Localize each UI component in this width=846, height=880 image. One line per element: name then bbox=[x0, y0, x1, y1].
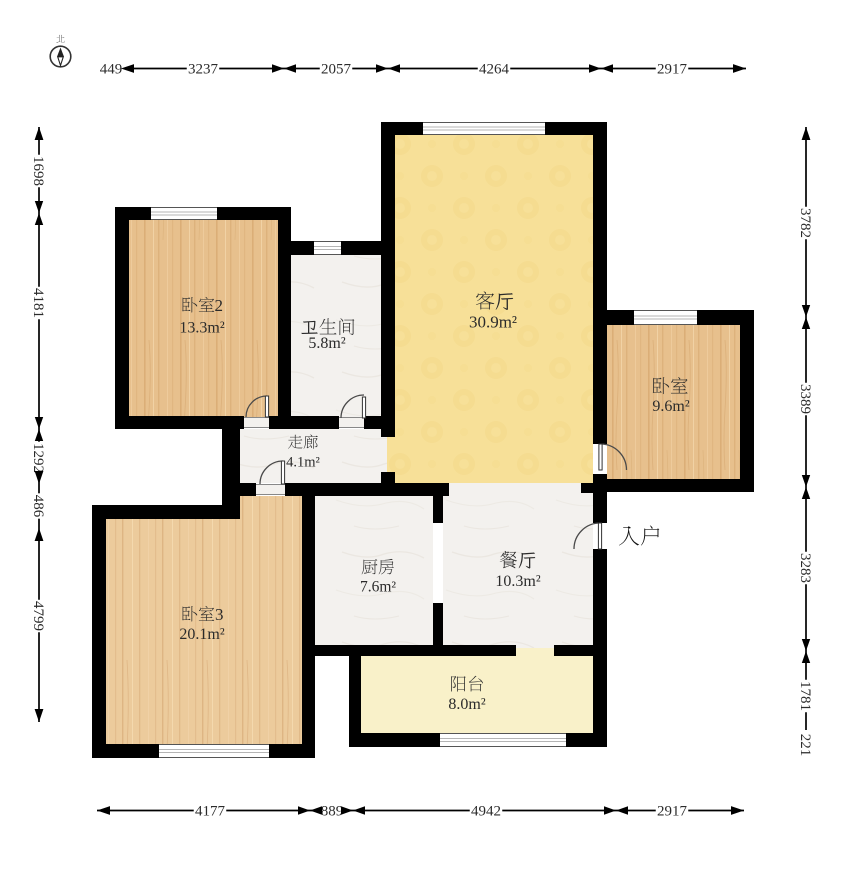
svg-text:4942: 4942 bbox=[471, 804, 501, 820]
svg-text:5.8m²: 5.8m² bbox=[308, 335, 345, 352]
svg-text:30.9m²: 30.9m² bbox=[469, 313, 517, 332]
svg-text:2917: 2917 bbox=[657, 62, 688, 78]
svg-text:8.0m²: 8.0m² bbox=[448, 696, 485, 713]
svg-text:889: 889 bbox=[321, 804, 344, 820]
svg-text:2917: 2917 bbox=[657, 804, 688, 820]
svg-text:4264: 4264 bbox=[479, 62, 510, 78]
svg-text:221: 221 bbox=[797, 734, 813, 757]
svg-text:2: 2 bbox=[215, 296, 224, 315]
svg-text:3389: 3389 bbox=[797, 384, 813, 414]
svg-text:1781: 1781 bbox=[797, 681, 813, 711]
svg-text:4181: 4181 bbox=[30, 288, 46, 318]
svg-text:4799: 4799 bbox=[30, 601, 46, 631]
svg-text:3782: 3782 bbox=[797, 208, 813, 238]
svg-text:9.6m²: 9.6m² bbox=[652, 398, 689, 415]
svg-text:1292: 1292 bbox=[30, 443, 46, 473]
svg-text:20.1m²: 20.1m² bbox=[179, 626, 224, 643]
svg-text:3: 3 bbox=[215, 605, 224, 624]
svg-text:10.3m²: 10.3m² bbox=[495, 573, 540, 590]
svg-text:449: 449 bbox=[100, 62, 123, 78]
svg-text:3237: 3237 bbox=[188, 62, 219, 78]
svg-text:1698: 1698 bbox=[30, 156, 46, 186]
svg-text:486: 486 bbox=[30, 495, 46, 518]
svg-text:13.3m²: 13.3m² bbox=[179, 319, 224, 336]
svg-text:4.1m²: 4.1m² bbox=[286, 455, 320, 471]
svg-text:7.6m²: 7.6m² bbox=[360, 579, 396, 596]
svg-text:4177: 4177 bbox=[195, 804, 226, 820]
svg-text:3283: 3283 bbox=[797, 553, 813, 583]
svg-text:2057: 2057 bbox=[321, 62, 352, 78]
